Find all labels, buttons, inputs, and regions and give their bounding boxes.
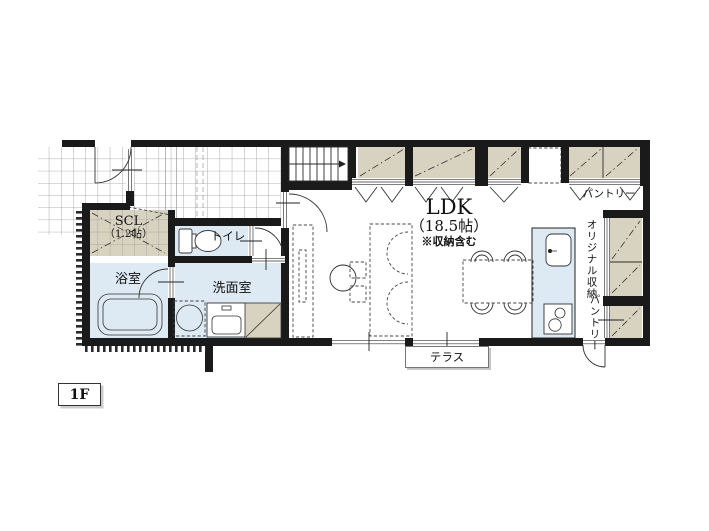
floor-plan: SCL （1.2帖） トイレ 浴室 洗面室 LDK （18.5帖） ※収納含む … — [0, 0, 709, 531]
original-storage-label: オリジナル収納 — [586, 219, 597, 300]
kitchen-counter — [532, 228, 575, 338]
pantry-top-label: パントリー — [576, 189, 642, 200]
stairs-direction-arrow — [339, 161, 346, 168]
bath-label: 浴室 — [102, 273, 154, 287]
scl-label: SCL — [89, 215, 168, 229]
tv-board — [293, 225, 313, 337]
floor-indicator: 1F — [58, 383, 101, 406]
top-closets — [358, 147, 640, 178]
right-storage-column — [598, 218, 642, 338]
terrace-label-text: テラス — [430, 349, 464, 365]
floorplan-drawing — [0, 0, 709, 531]
washroom-label: 洗面室 — [194, 282, 270, 296]
terrace-label: テラス — [405, 346, 489, 368]
dining-table — [463, 251, 533, 314]
ldk-label: LDK — [399, 196, 499, 218]
refrigerator-space — [528, 148, 561, 183]
washroom-corner-storage — [245, 303, 281, 338]
toilet-label: トイレ — [204, 230, 252, 242]
stairs — [289, 147, 348, 181]
floor-indicator-text: 1F — [70, 387, 90, 403]
ldk-size-label: （18.5帖） — [399, 219, 499, 235]
pantry-side-label: パントリー — [589, 294, 600, 352]
stove — [544, 304, 572, 334]
vanity-cabinet — [207, 303, 246, 337]
scl-size-label: （1.2帖） — [89, 229, 168, 240]
ldk-note-label: ※収納含む — [399, 236, 499, 248]
ldk-door — [276, 192, 327, 232]
kitchen-sink — [546, 234, 571, 266]
